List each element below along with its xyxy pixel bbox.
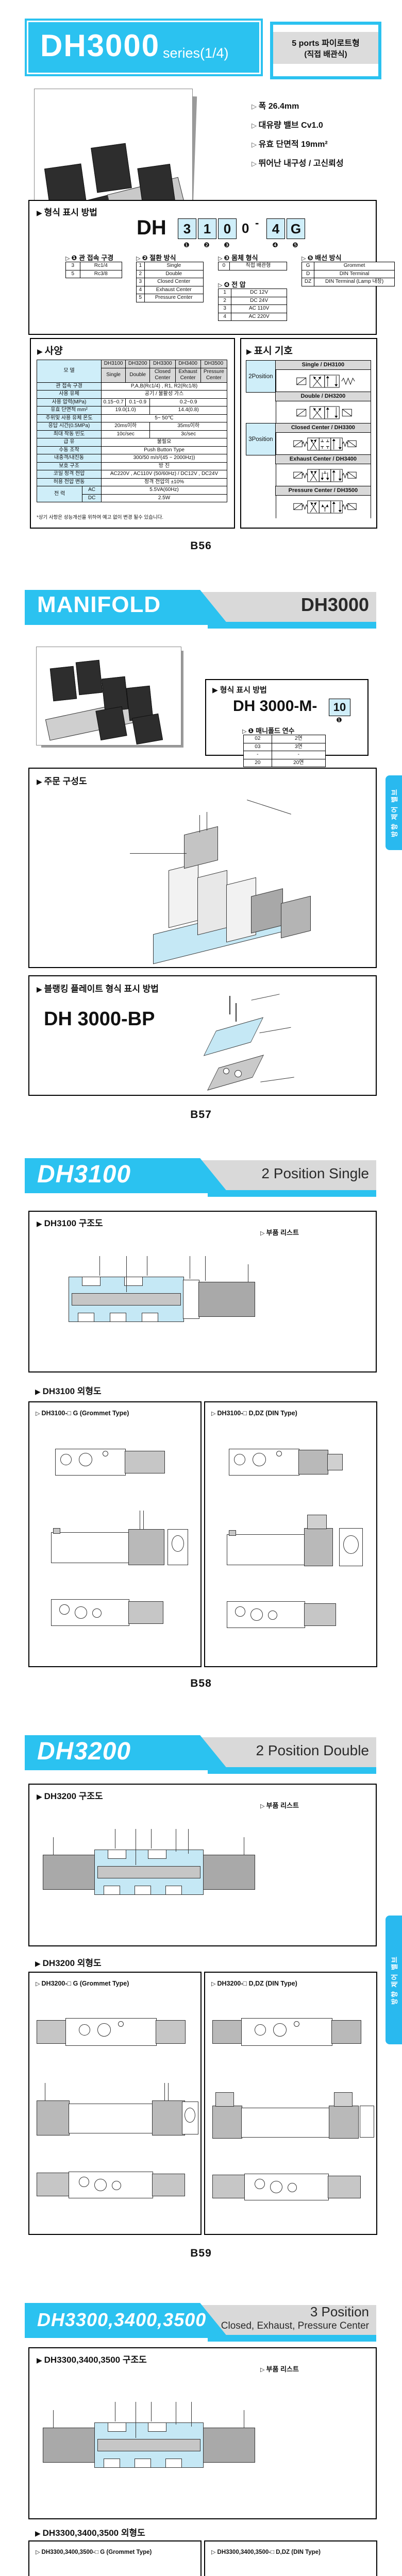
cell: 2 bbox=[137, 270, 145, 278]
cell: 직접 배관형 bbox=[229, 262, 287, 270]
dh3300-header: DH3300,3400,3500 3 Position Closed, Exha… bbox=[25, 2303, 376, 2344]
code-digit: 1 bbox=[198, 218, 216, 239]
symbol-label: Closed Center / DH3300 bbox=[275, 423, 371, 433]
manifold-count-table: 022연033연--2020연 bbox=[243, 735, 326, 767]
cell: Push Button Type bbox=[102, 446, 227, 454]
symbol-title: 표시 기호 bbox=[246, 343, 293, 357]
cell: 허용 전압 변동 bbox=[37, 478, 102, 486]
cell: 전 력 bbox=[37, 486, 82, 502]
code-dash: - bbox=[255, 216, 259, 230]
dh3300-subtitle2: Closed, Exhaust, Pressure Center bbox=[221, 2320, 369, 2332]
parts-list-title: 부품 리스트 bbox=[260, 1800, 299, 1810]
side-tab-direction-control: 방향 제어 밸브 bbox=[386, 1916, 402, 2044]
dimension-drawing-grommet bbox=[29, 2541, 200, 2576]
cell: AC bbox=[82, 486, 102, 495]
cell: 03 bbox=[244, 743, 272, 751]
structure-title: DH3300,3400,3500 구조도 bbox=[37, 2352, 147, 2365]
port-size-table: 3Rc1/45Rc3/8 bbox=[65, 262, 122, 278]
dimension-drawing-grommet bbox=[29, 1402, 200, 1666]
cell: Closed Center bbox=[144, 278, 203, 286]
position-label: 2Position bbox=[246, 360, 276, 393]
cell: 0.15~0.7 bbox=[102, 398, 126, 406]
symbol-label: Exhaust Center / DH3400 bbox=[275, 454, 371, 464]
cell: 주위및 사용 유체 온도 bbox=[37, 414, 102, 422]
page-number: B59 bbox=[190, 2247, 212, 2260]
blanking-plate-box: 블랭킹 플레이트 형식 표시 방법 DH 3000-BP bbox=[28, 975, 377, 1096]
cell: DC bbox=[82, 494, 102, 502]
cell: D bbox=[302, 270, 314, 278]
dimension-drawing-din bbox=[205, 1402, 376, 1666]
symbol-group-2position-b: Double / DH3200 bbox=[246, 392, 371, 424]
structure-diagram bbox=[38, 1244, 259, 1360]
dimension-drawing-grommet bbox=[29, 1973, 200, 2234]
cell: Single bbox=[144, 262, 203, 270]
cell: DH3400 bbox=[175, 360, 200, 368]
cell: 5 bbox=[137, 294, 145, 302]
valve-symbol-exhaust-center bbox=[276, 464, 371, 487]
cell: 공기 / 불활성 가스 bbox=[102, 391, 227, 399]
valve-symbol-closed-center bbox=[276, 433, 371, 455]
manifold-code-box-digit: 10 bbox=[329, 699, 350, 716]
dh3100-header: DH3100 2 Position Single bbox=[25, 1158, 376, 1199]
cell: 2 bbox=[219, 297, 231, 305]
t1-title: ❶ 관 접속 구경 bbox=[65, 252, 113, 262]
body-type-table: 0직접 배관형 bbox=[218, 262, 287, 270]
cell: 2.5W bbox=[102, 494, 227, 502]
cell: 급 유 bbox=[37, 438, 102, 447]
dh3100-din-panel: DH3100-□ D,DZ (DIN Type) bbox=[204, 1401, 377, 1667]
type-line2: (직접 배관식) bbox=[273, 48, 378, 59]
structure-title: DH3100 구조도 bbox=[37, 1216, 103, 1229]
cell: 유효 단면적 mm² bbox=[37, 406, 102, 415]
cell: 5~ 50℃ bbox=[102, 414, 227, 422]
dh3200-title: DH3200 bbox=[37, 1737, 131, 1766]
t5-title: ❺ 배선 방식 bbox=[301, 252, 342, 262]
cell: Exhaust Center bbox=[175, 368, 200, 382]
symbol-group-3position: 3Position Closed Center / DH3300 bbox=[246, 423, 371, 455]
dh3200-din-panel: DH3200-□ D,DZ (DIN Type) bbox=[204, 1972, 377, 2235]
cell: Exhaust Center bbox=[144, 286, 203, 294]
dh3200-structure-box: DH3200 구조도 부품 리스트 bbox=[28, 1784, 377, 1946]
structure-title: DH3200 구조도 bbox=[37, 1789, 103, 1802]
cell: 1 bbox=[137, 262, 145, 270]
cell: 3c/sec bbox=[150, 430, 227, 438]
code-digit: 0 bbox=[218, 218, 237, 239]
cell: 3 bbox=[137, 278, 145, 286]
manifold-code-marker: ❶ bbox=[336, 716, 342, 724]
spec-note: *상기 사항은 성능개선을 위하여 예고 없이 변경 될수 있습니다. bbox=[37, 513, 163, 520]
spec-box: 사양 모 델DH3100DH3200DH3300DH3400DH3500Sing… bbox=[30, 338, 235, 529]
cell: Double bbox=[126, 368, 150, 382]
dh3200-header: DH3200 2 Position Double bbox=[25, 1735, 376, 1776]
code-digit: 3 bbox=[178, 218, 196, 239]
dimension-drawing-din bbox=[205, 1973, 376, 2234]
order-config-box: 주문 구성도 bbox=[28, 768, 377, 968]
dh3300-title: DH3300,3400,3500 bbox=[37, 2309, 206, 2331]
cell: 35ms이하 bbox=[150, 422, 227, 431]
cell: Closed Center bbox=[150, 368, 175, 382]
cell: AC 110V bbox=[231, 305, 287, 313]
cell: Pressure Center bbox=[200, 368, 227, 382]
symbol-label: Double / DH3200 bbox=[275, 392, 371, 401]
cell: AC220V , AC110V (50/60Hz) / DC12V , DC24… bbox=[102, 470, 227, 479]
manifold-photo bbox=[36, 647, 186, 750]
manifold-code: DH 3000-M- bbox=[233, 698, 317, 715]
dh3200-outline-title: DH3200 외형도 bbox=[35, 1956, 102, 1969]
t3-title: ❸ 몸체 형식 bbox=[218, 252, 258, 262]
cell: 2연 bbox=[272, 735, 325, 743]
valve-symbol-pressure-center bbox=[276, 496, 371, 518]
t2-title: ❷ 절환 방식 bbox=[136, 252, 176, 262]
cell: 모 델 bbox=[37, 360, 102, 383]
code-marker: ❹ bbox=[272, 241, 278, 249]
cell: DH3200 bbox=[126, 360, 150, 368]
cell: 코일 정격 전압 bbox=[37, 470, 102, 479]
main-header: DH3000 series(1/4) bbox=[25, 19, 263, 76]
symbol-label: Pressure Center / DH3500 bbox=[275, 486, 371, 496]
cell: 응답 시간(0.5MPa) bbox=[37, 422, 102, 431]
cell: 3연 bbox=[272, 743, 325, 751]
spec-title: 사양 bbox=[37, 343, 63, 357]
dh3100-subtitle: 2 Position Single bbox=[261, 1165, 369, 1182]
dh3200-subtitle: 2 Position Double bbox=[256, 1742, 369, 1759]
dh3100-structure-box: DH3100 구조도 부품 리스트 bbox=[28, 1211, 377, 1372]
cell: Grommet bbox=[314, 262, 395, 270]
parts-list-title: 부품 리스트 bbox=[260, 2364, 299, 2374]
symbol-group-2position: 2Position Single / DH3100 bbox=[246, 361, 371, 393]
feature-item: 대유량 밸브 Cv1.0 bbox=[252, 118, 344, 130]
cell: 300/50 m/s²(45 ~ 2000Hz)) bbox=[102, 454, 227, 463]
cell: - bbox=[244, 751, 272, 759]
manifold-header: MANIFOLD DH3000 bbox=[25, 590, 376, 631]
cell: 20ms이하 bbox=[102, 422, 150, 431]
dimension-drawing-din bbox=[205, 2541, 376, 2576]
cell: 4 bbox=[137, 286, 145, 294]
code-marker: ❷ bbox=[204, 241, 210, 249]
symbol-label: Single / DH3100 bbox=[275, 360, 371, 370]
manifold-model: DH3000 bbox=[301, 594, 369, 616]
cell: 10c/sec bbox=[102, 430, 150, 438]
position-label: 3Position bbox=[246, 423, 276, 455]
type-line1: 5 ports 파이로트형 bbox=[273, 36, 378, 48]
dh3300-outline-title: DH3300,3400,3500 외형도 bbox=[35, 2526, 145, 2538]
cell: DH3500 bbox=[200, 360, 227, 368]
blanking-diagram bbox=[29, 976, 376, 1095]
feature-list: 폭 26.4mm 대유량 밸브 Cv1.0 유효 단면적 19mm² 뛰어난 내… bbox=[252, 99, 344, 175]
cell: Pressure Center bbox=[144, 294, 203, 302]
main-title: DH3000 bbox=[40, 28, 160, 63]
model-code-box: 형식 표시 방법 DH 3 1 0 0 - 4 G ❶ ❷ ❸ ❹ ❺ ❶ 관 … bbox=[28, 200, 377, 335]
cell: Single bbox=[102, 368, 126, 382]
feature-item: 폭 26.4mm bbox=[252, 99, 344, 111]
cell: DC 12V bbox=[231, 289, 287, 297]
wiring-table: GGrommetDDIN TerminalDZDIN Terminal (Lam… bbox=[301, 262, 395, 286]
order-config-diagram bbox=[29, 769, 376, 967]
code-marker: ❺ bbox=[292, 241, 298, 249]
cell: 0 bbox=[219, 262, 230, 270]
dh3100-title: DH3100 bbox=[37, 1160, 131, 1189]
valve-symbol-single bbox=[276, 370, 371, 393]
cell: 사용 압력(MPa) bbox=[37, 398, 102, 406]
cell: DIN Terminal (Lamp 내장) bbox=[314, 278, 395, 286]
cell: 14.4(0.8) bbox=[150, 406, 227, 415]
symbol-box: 표시 기호 2Position Single / DH3100 bbox=[240, 338, 377, 529]
cell: DC 24V bbox=[231, 297, 287, 305]
cell: 보호 구조 bbox=[37, 462, 102, 470]
feature-item: 유효 단면적 19mm² bbox=[252, 137, 344, 149]
cell: Rc1/4 bbox=[80, 262, 122, 270]
cell: 0.2~0.9 bbox=[150, 398, 227, 406]
catalog-page: DH3000 series(1/4) 5 ports 파이로트형 (직접 배관식… bbox=[0, 0, 402, 2576]
page-number: B58 bbox=[190, 1677, 212, 1690]
code-digit: G bbox=[287, 218, 305, 239]
cell: 20연 bbox=[272, 759, 325, 767]
code-digit: 4 bbox=[266, 218, 285, 239]
cell: 20 bbox=[244, 759, 272, 767]
cell: DIN Terminal bbox=[314, 270, 395, 278]
code-marker: ❸ bbox=[224, 241, 230, 249]
cell: DH3100 bbox=[102, 360, 126, 368]
page-number: B56 bbox=[190, 540, 212, 552]
cell: DH3300 bbox=[150, 360, 175, 368]
symbol-group-3position-c: Pressure Center / DH3500 bbox=[246, 486, 371, 518]
manifold-code-box: 형식 표시 방법 DH 3000-M- 10 ❶ ❶ 매니폴드 연수 022연0… bbox=[205, 679, 368, 756]
code-digit: 0 bbox=[242, 218, 249, 238]
cell: Double bbox=[144, 270, 203, 278]
spec-table: 모 델DH3100DH3200DH3300DH3400DH3500SingleD… bbox=[37, 360, 227, 502]
cell: 3 bbox=[66, 262, 80, 270]
dh3300-grommet-panel: DH3300,3400,3500-□ G (Grommet Type) bbox=[28, 2540, 202, 2576]
cell: 1 bbox=[219, 289, 231, 297]
parts-list-title: 부품 리스트 bbox=[260, 1227, 299, 1237]
structure-diagram bbox=[38, 1817, 259, 1935]
cell: 관 접속 구경 bbox=[37, 382, 102, 391]
dh3300-structure-box: DH3300,3400,3500 구조도 부품 리스트 bbox=[28, 2347, 377, 2519]
cell: 수동 조작 bbox=[37, 446, 102, 454]
cell: 4 bbox=[219, 313, 231, 321]
dh3300-subtitle1: 3 Position bbox=[310, 2304, 369, 2320]
manifold-code-title: 형식 표시 방법 bbox=[212, 684, 267, 695]
cell: 정격 전압의 ±10% bbox=[102, 478, 227, 486]
cell: P,A,B(Rc1/4) , R1, R2(Rc1/8) bbox=[102, 382, 227, 391]
code-marker: ❶ bbox=[183, 241, 190, 249]
cell: AC 220V bbox=[231, 313, 287, 321]
dh3100-outline-title: DH3100 외형도 bbox=[35, 1384, 102, 1397]
symbol-group-3position-b: Exhaust Center / DH3400 bbox=[246, 455, 371, 487]
side-tab-direction-control: 방향 제어 밸브 bbox=[386, 775, 402, 850]
cell: G bbox=[302, 262, 314, 270]
dh3300-din-panel: DH3300,3400,3500-□ D,DZ (DIN Type) bbox=[204, 2540, 377, 2576]
cell: DZ bbox=[302, 278, 314, 286]
code-prefix: DH bbox=[137, 216, 166, 240]
actuation-table: 1Single2Double3Closed Center4Exhaust Cen… bbox=[136, 262, 204, 302]
main-series: series(1/4) bbox=[163, 45, 229, 61]
voltage-table: 1DC 12V2DC 24V3AC 110V4AC 220V bbox=[218, 289, 287, 321]
dh3100-grommet-panel: DH3100-□ G (Grommet Type) bbox=[28, 1401, 202, 1667]
cell: 5.5VA(60Hz) bbox=[102, 486, 227, 495]
header-type-box: 5 ports 파이로트형 (직접 배관식) bbox=[270, 22, 381, 79]
cell: 사용 유체 bbox=[37, 391, 102, 399]
manifold-count-title: ❶ 매니폴드 연수 bbox=[242, 725, 295, 735]
cell: 내충격/내진동 bbox=[37, 454, 102, 463]
cell: Rc3/8 bbox=[80, 270, 122, 278]
cell: - bbox=[272, 751, 325, 759]
cell: 3 bbox=[219, 305, 231, 313]
cell: 최대 작동 빈도 bbox=[37, 430, 102, 438]
cell: 방 진 bbox=[102, 462, 227, 470]
cell: 5 bbox=[66, 270, 80, 278]
page-number: B57 bbox=[190, 1109, 212, 1121]
model-code-title: 형식 표시 방법 bbox=[37, 205, 97, 218]
manifold-title: MANIFOLD bbox=[37, 592, 161, 618]
cell: 02 bbox=[244, 735, 272, 743]
structure-diagram bbox=[38, 2389, 259, 2508]
t4-title: ❹ 전 압 bbox=[218, 279, 246, 289]
dh3200-grommet-panel: DH3200-□ G (Grommet Type) bbox=[28, 1972, 202, 2235]
feature-item: 뛰어난 내구성 / 고신뢰성 bbox=[252, 156, 344, 168]
valve-symbol-double bbox=[276, 401, 371, 424]
cell: 19.0(1.0) bbox=[102, 406, 150, 415]
cell: 불필요 bbox=[102, 438, 227, 447]
cell: 0.1~0.9 bbox=[126, 398, 150, 406]
